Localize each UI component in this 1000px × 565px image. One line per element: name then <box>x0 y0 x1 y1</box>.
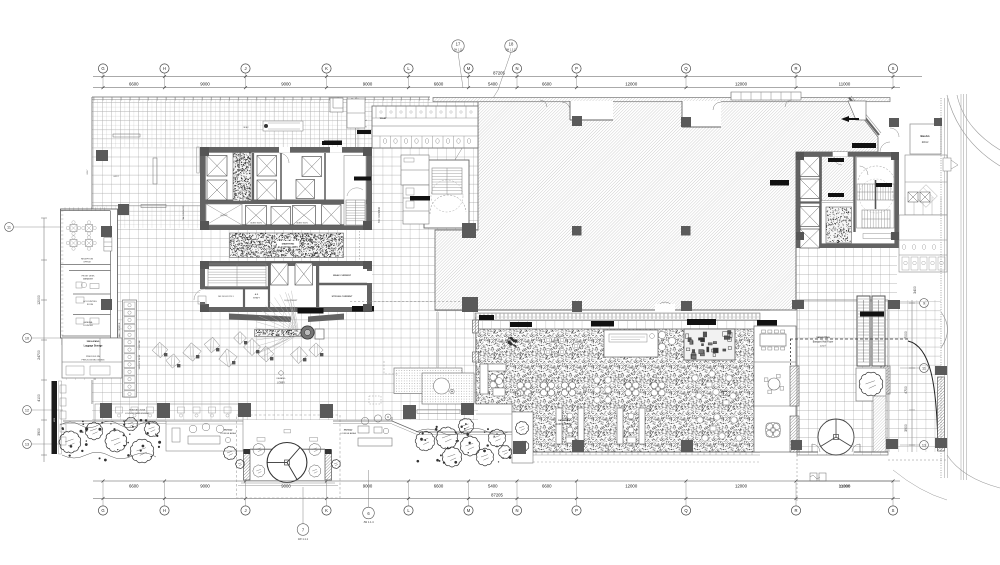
svg-text:SHAFT: SHAFT <box>253 297 261 300</box>
svg-text:XIUXIQU: XIUXIQU <box>344 430 353 432</box>
svg-text:STRONG CURRENT: STRONG CURRENT <box>332 296 353 298</box>
svg-text:JW 1.3.11: JW 1.3.11 <box>506 49 517 52</box>
svg-text:JUST LOUNGE: JUST LOUNGE <box>556 424 573 426</box>
svg-text:HUAYUAN JIUBA: HUAYUAN JIUBA <box>129 409 146 412</box>
svg-text:6600: 6600 <box>434 81 444 86</box>
svg-text:DIANTITING: DIANTITING <box>282 243 295 246</box>
svg-text:LOUNGE GARDEN/BAR: LOUNGE GARDEN/BAR <box>125 412 150 415</box>
svg-text:5400: 5400 <box>488 484 498 489</box>
svg-text:H: H <box>163 66 166 71</box>
svg-text:M: M <box>467 508 471 513</box>
svg-text:K: K <box>325 66 328 71</box>
svg-text:Bar Lounge: Bar Lounge <box>718 394 730 397</box>
svg-text:5400: 5400 <box>488 81 498 86</box>
svg-text:18: 18 <box>509 42 514 47</box>
svg-text:JW 1.13: JW 1.13 <box>454 49 463 52</box>
svg-text:9000: 9000 <box>281 81 291 86</box>
svg-text:GUEST ELEV: GUEST ELEV <box>250 223 263 225</box>
svg-text:LOUNGE AREA: LOUNGE AREA <box>340 432 356 435</box>
svg-text:87205: 87205 <box>491 493 503 498</box>
svg-text:J: J <box>244 508 246 513</box>
svg-text:EQUIPMENT: EQUIPMENT <box>284 300 298 302</box>
svg-text:GUEST ELEV: GUEST ELEV <box>296 223 309 225</box>
svg-text:DATANGBA: DATANGBA <box>558 419 570 422</box>
svg-text:XINGLIFANG: XINGLIFANG <box>87 340 100 343</box>
svg-text:6617: 6617 <box>87 169 89 175</box>
svg-text:MANAGER: MANAGER <box>83 278 94 281</box>
svg-text:Banquet Hall Foyer: Banquet Hall Foyer <box>813 341 834 344</box>
svg-text:6600: 6600 <box>434 484 444 489</box>
svg-text:S: S <box>892 66 895 71</box>
svg-text:N: N <box>515 66 518 71</box>
svg-text:11000: 11000 <box>840 484 852 489</box>
svg-text:12000: 12000 <box>625 484 638 489</box>
svg-text:H: H <box>163 508 166 513</box>
svg-text:12000: 12000 <box>625 81 638 86</box>
svg-text:12: 12 <box>25 409 29 413</box>
svg-text:TOILET: TOILET <box>379 118 387 120</box>
svg-text:ACCOUNTING: ACCOUNTING <box>83 300 97 303</box>
svg-text:10: 10 <box>25 337 29 341</box>
svg-text:9000: 9000 <box>200 81 210 86</box>
svg-text:225m²: 225m² <box>820 345 826 348</box>
svg-text:MF DD/01223.1: MF DD/01223.1 <box>218 296 234 298</box>
svg-text:N: N <box>515 508 518 513</box>
svg-text:ELEVATOR LOBBY: ELEVATOR LOBBY <box>278 246 299 249</box>
svg-text:YANHUITING: YANHUITING <box>816 336 830 339</box>
svg-text:GENERAL: GENERAL <box>83 321 93 324</box>
svg-text:WEAK CURRENT: WEAK CURRENT <box>333 274 352 277</box>
svg-text:6600: 6600 <box>542 81 552 86</box>
svg-text:P: P <box>575 66 578 71</box>
svg-text:11: 11 <box>7 226 11 230</box>
svg-text:XIUXIQU: XIUXIQU <box>224 430 233 432</box>
svg-text:BAR COUNTER: BAR COUNTER <box>118 322 121 337</box>
svg-text:3900: 3900 <box>37 428 41 436</box>
svg-text:9000: 9000 <box>200 484 210 489</box>
svg-text:12000: 12000 <box>37 295 41 305</box>
svg-text:G: G <box>101 66 104 71</box>
svg-text:K: K <box>325 508 328 513</box>
svg-text:11000: 11000 <box>839 81 851 86</box>
svg-text:BaoAn: BaoAn <box>920 134 929 138</box>
svg-text:JW 1.1.4: JW 1.1.4 <box>363 520 374 524</box>
svg-text:PRECIOUS RM: PRECIOUS RM <box>86 356 100 358</box>
svg-text:9000: 9000 <box>363 484 373 489</box>
svg-text:LOBBY: LOBBY <box>277 382 285 385</box>
svg-text:JIUBA: JIUBA <box>721 390 728 393</box>
svg-text:Luggage Storage: Luggage Storage <box>84 345 103 348</box>
svg-text:12000: 12000 <box>735 484 748 489</box>
svg-text:COUNTER: COUNTER <box>83 325 93 327</box>
svg-text:6600: 6600 <box>129 484 139 489</box>
svg-text:S: S <box>892 508 895 513</box>
svg-text:A.B: A.B <box>255 293 259 296</box>
svg-text:9000: 9000 <box>281 484 291 489</box>
svg-text:TAF DD/01223: TAF DD/01223 <box>182 205 185 220</box>
svg-text:DATANG: DATANG <box>277 377 286 380</box>
svg-text:RECEPTION: RECEPTION <box>81 259 94 261</box>
svg-text:6600: 6600 <box>129 81 139 86</box>
svg-text:TAF DD/02630: TAF DD/02630 <box>378 206 381 222</box>
svg-text:FUWUTAI: FUWUTAI <box>138 340 141 349</box>
svg-text:P: P <box>575 508 578 513</box>
svg-text:ROOM: ROOM <box>87 304 94 306</box>
svg-text:10m²: 10m² <box>922 140 929 144</box>
svg-text:R: R <box>794 508 797 513</box>
svg-text:SERVICE DESK: SERVICE DESK <box>139 354 141 369</box>
svg-text:12000: 12000 <box>735 81 748 86</box>
svg-text:G: G <box>101 508 104 513</box>
svg-text:4100: 4100 <box>37 394 41 402</box>
svg-text:13: 13 <box>25 443 29 447</box>
svg-text:R: R <box>794 66 797 71</box>
svg-text:LOUNGE AREA: LOUNGE AREA <box>220 432 236 435</box>
svg-text:17: 17 <box>456 42 461 47</box>
svg-text:9000: 9000 <box>363 81 373 86</box>
svg-text:OFFICE: OFFICE <box>83 262 91 264</box>
svg-text:M: M <box>467 66 471 71</box>
svg-text:PRECIOUS BELONGING: PRECIOUS BELONGING <box>82 360 105 362</box>
svg-text:24700: 24700 <box>37 350 41 360</box>
svg-text:GXDT: GXDT <box>113 176 119 178</box>
svg-text:6600: 6600 <box>542 484 552 489</box>
svg-text:EQUIP: EQUIP <box>221 215 228 217</box>
svg-text:FRONT DESK: FRONT DESK <box>82 276 96 278</box>
svg-text:3400: 3400 <box>913 286 917 294</box>
svg-text:J: J <box>244 66 246 71</box>
svg-text:JW 1.1.1: JW 1.1.1 <box>298 537 309 541</box>
svg-text:H028: H028 <box>54 418 56 422</box>
svg-text:SFEC: SFEC <box>243 127 249 129</box>
